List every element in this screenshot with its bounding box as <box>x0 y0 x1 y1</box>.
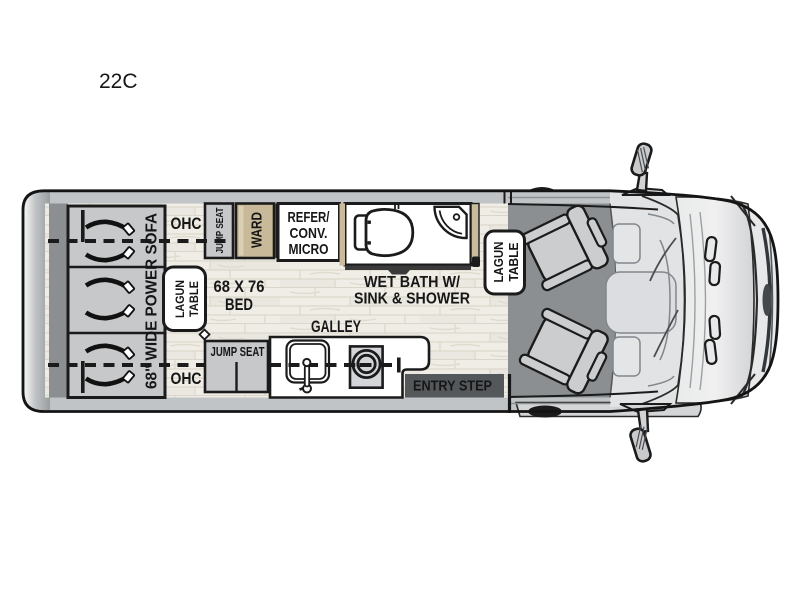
svg-text:ENTRY STEP: ENTRY STEP <box>413 378 492 395</box>
svg-text:LAGUN: LAGUN <box>175 280 187 318</box>
svg-text:WET BATH W/: WET BATH W/ <box>364 274 460 291</box>
svg-text:CONV.: CONV. <box>290 225 328 242</box>
svg-text:WARD: WARD <box>249 212 266 248</box>
svg-text:68" WIDE POWER SOFA: 68" WIDE POWER SOFA <box>144 213 161 389</box>
svg-text:22C: 22C <box>99 70 138 93</box>
svg-text:TABLE: TABLE <box>189 281 201 317</box>
svg-text:LAGUN: LAGUN <box>492 242 506 283</box>
svg-text:OHC: OHC <box>171 369 202 388</box>
svg-text:REFER/: REFER/ <box>288 209 331 226</box>
svg-text:TABLE: TABLE <box>507 243 521 282</box>
svg-text:MICRO: MICRO <box>289 241 329 258</box>
svg-text:JUMP SEAT: JUMP SEAT <box>211 344 265 359</box>
svg-text:SINK & SHOWER: SINK & SHOWER <box>354 291 470 308</box>
svg-text:68 X 76: 68 X 76 <box>214 277 265 296</box>
svg-text:JUMP SEAT: JUMP SEAT <box>214 207 226 253</box>
svg-text:OHC: OHC <box>171 214 202 233</box>
svg-text:BED: BED <box>225 295 253 314</box>
svg-text:GALLEY: GALLEY <box>311 317 361 336</box>
